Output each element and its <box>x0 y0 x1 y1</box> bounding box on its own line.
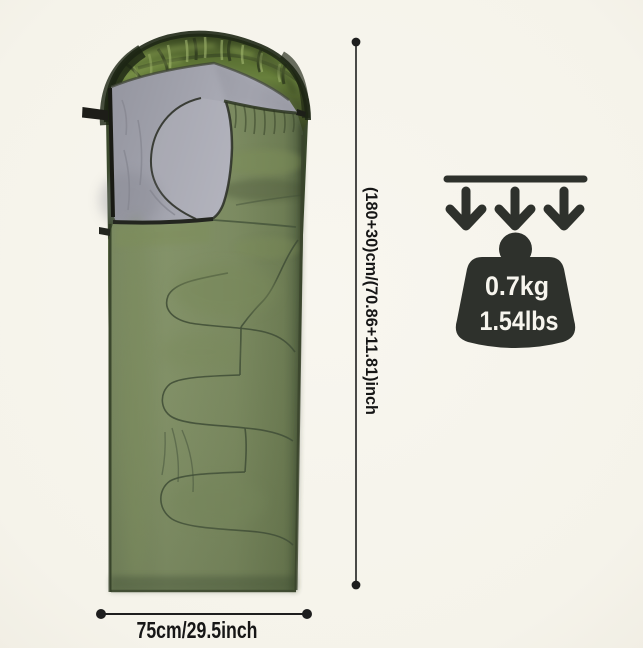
svg-text:1.54lbs: 1.54lbs <box>480 306 559 336</box>
svg-text:75cm/29.5inch: 75cm/29.5inch <box>137 617 258 643</box>
svg-text:0.7kg: 0.7kg <box>485 271 549 301</box>
svg-text:(180+30)cm/(70.86+11.81)inch: (180+30)cm/(70.86+11.81)inch <box>362 187 380 415</box>
